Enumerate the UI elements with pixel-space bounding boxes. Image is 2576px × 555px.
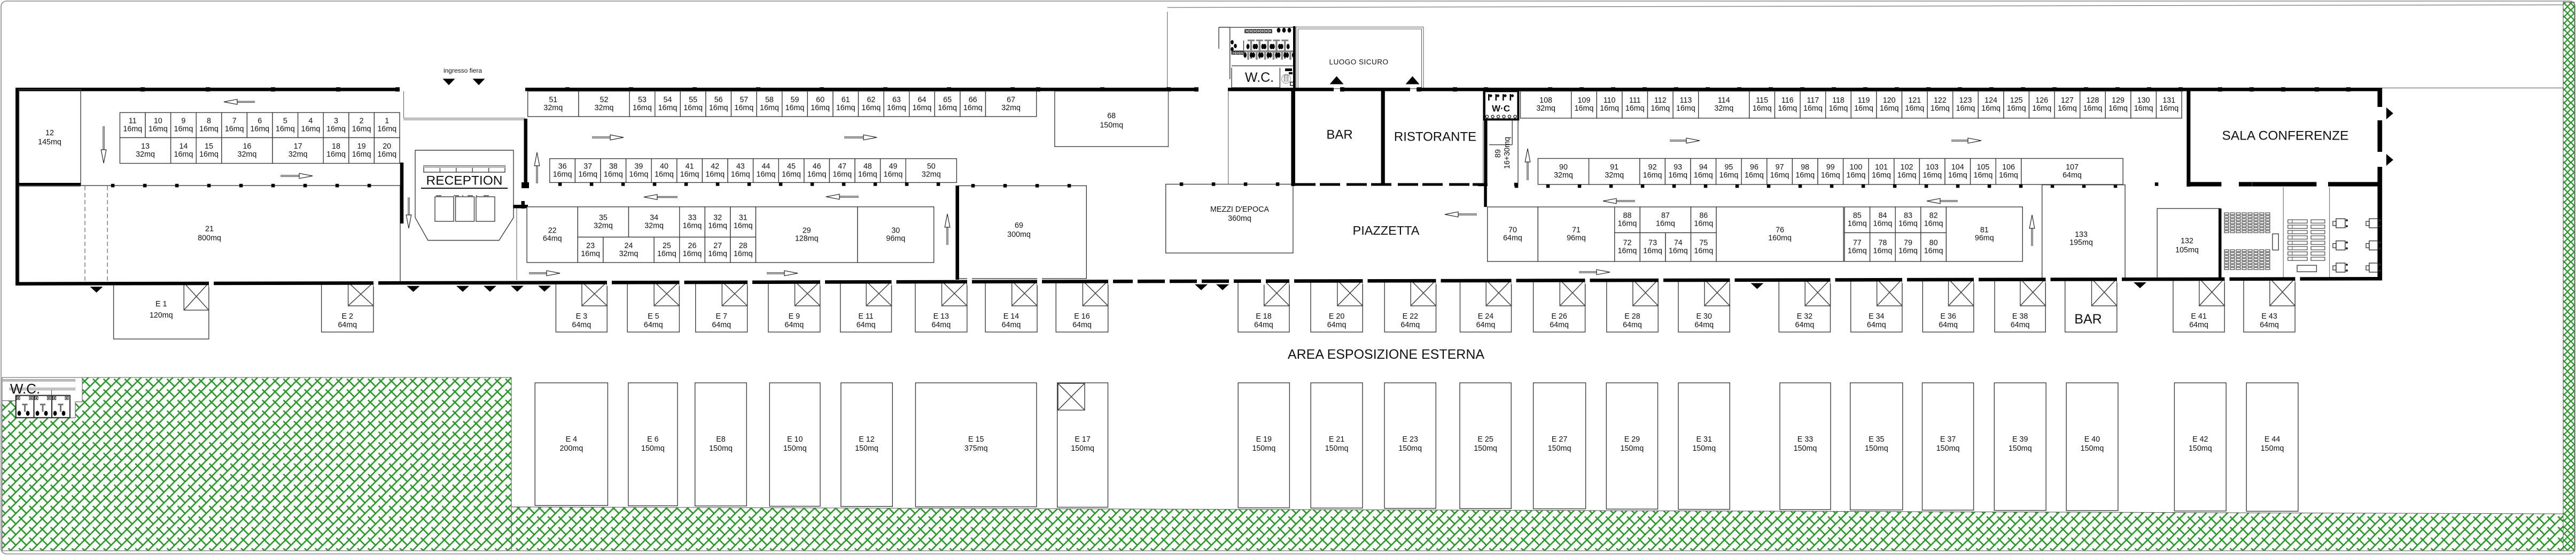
svg-text:200mq: 200mq <box>559 444 583 453</box>
svg-text:96: 96 <box>1750 163 1758 172</box>
svg-text:E 1: E 1 <box>155 300 167 309</box>
svg-text:150mq: 150mq <box>1865 444 1888 453</box>
svg-text:16mq: 16mq <box>1656 220 1675 228</box>
svg-text:94: 94 <box>1699 163 1708 172</box>
svg-text:121: 121 <box>1908 96 1921 105</box>
svg-text:16mq: 16mq <box>1829 104 1848 113</box>
svg-text:32mq: 32mq <box>619 250 639 258</box>
svg-text:64mq: 64mq <box>1623 321 1642 329</box>
svg-text:107: 107 <box>2066 163 2079 172</box>
svg-text:16mq: 16mq <box>633 104 652 112</box>
svg-text:16mq: 16mq <box>174 150 193 159</box>
svg-text:79: 79 <box>1904 239 1912 248</box>
svg-text:122: 122 <box>1934 96 1947 105</box>
svg-text:108: 108 <box>1539 96 1552 105</box>
svg-text:32mq: 32mq <box>1605 171 1624 180</box>
svg-text:85: 85 <box>1853 212 1862 220</box>
svg-text:57: 57 <box>740 96 748 104</box>
svg-text:16mq: 16mq <box>832 171 852 179</box>
svg-text:64mq: 64mq <box>1939 321 1958 329</box>
svg-text:97: 97 <box>1776 163 1784 172</box>
svg-text:16mq: 16mq <box>1924 220 1943 228</box>
svg-text:16mq: 16mq <box>1694 247 1713 256</box>
svg-text:RISTORANTE: RISTORANTE <box>1394 130 1476 144</box>
svg-text:132: 132 <box>2181 237 2193 245</box>
svg-text:64mq: 64mq <box>1254 321 1273 329</box>
svg-text:64mq: 64mq <box>543 234 562 243</box>
svg-text:23: 23 <box>586 242 595 250</box>
svg-text:96mq: 96mq <box>1975 234 1994 243</box>
svg-text:83: 83 <box>1904 212 1912 220</box>
svg-text:16mq: 16mq <box>2058 104 2077 113</box>
svg-text:E 27: E 27 <box>1552 435 1567 444</box>
svg-text:16mq: 16mq <box>1999 171 2018 180</box>
svg-text:16mq: 16mq <box>352 150 371 159</box>
svg-text:99: 99 <box>1826 163 1835 172</box>
svg-text:110: 110 <box>1604 96 1616 105</box>
svg-text:150mq: 150mq <box>855 444 878 453</box>
svg-text:16mq: 16mq <box>760 104 779 112</box>
svg-text:16mq: 16mq <box>887 104 906 112</box>
svg-text:16mq: 16mq <box>1778 104 1797 113</box>
svg-text:24: 24 <box>625 242 633 250</box>
svg-text:34: 34 <box>650 214 658 222</box>
svg-text:82: 82 <box>1929 212 1938 220</box>
svg-text:16mq: 16mq <box>149 125 168 134</box>
svg-text:15: 15 <box>205 142 213 151</box>
svg-text:16mq: 16mq <box>377 125 396 134</box>
svg-text:88: 88 <box>1623 212 1632 220</box>
svg-text:18: 18 <box>332 142 340 151</box>
svg-text:59: 59 <box>791 96 799 104</box>
svg-text:84: 84 <box>1878 212 1887 220</box>
svg-text:16mq: 16mq <box>578 171 597 179</box>
svg-text:70: 70 <box>1508 226 1517 235</box>
svg-text:41: 41 <box>686 163 694 171</box>
svg-text:16mq: 16mq <box>731 171 750 179</box>
svg-text:E 4: E 4 <box>566 435 578 444</box>
svg-text:114: 114 <box>1718 96 1730 105</box>
svg-text:16+30mq: 16+30mq <box>1503 137 1512 169</box>
svg-text:69: 69 <box>1015 221 1023 230</box>
svg-text:16mq: 16mq <box>708 222 727 230</box>
svg-text:11: 11 <box>129 117 137 126</box>
svg-text:E 38: E 38 <box>2012 312 2028 321</box>
svg-text:16mq: 16mq <box>811 104 830 112</box>
svg-text:16mq: 16mq <box>836 104 855 112</box>
svg-text:6: 6 <box>258 117 262 126</box>
svg-text:36: 36 <box>558 163 567 171</box>
svg-text:80: 80 <box>1929 239 1938 248</box>
svg-text:16mq: 16mq <box>1880 104 1899 113</box>
svg-text:160mq: 160mq <box>1768 234 1792 243</box>
svg-text:W·C: W·C <box>1492 104 1510 114</box>
svg-text:16mq: 16mq <box>1668 171 1687 180</box>
svg-text:E 21: E 21 <box>1329 435 1344 444</box>
svg-text:3: 3 <box>334 117 338 126</box>
svg-text:74: 74 <box>1674 239 1683 248</box>
svg-text:64mq: 64mq <box>644 321 663 329</box>
svg-text:16mq: 16mq <box>708 250 727 258</box>
svg-text:16mq: 16mq <box>1651 104 1670 113</box>
svg-text:64mq: 64mq <box>1400 321 1420 329</box>
svg-text:16mq: 16mq <box>884 171 903 179</box>
svg-text:2: 2 <box>360 117 364 126</box>
svg-text:16mq: 16mq <box>1923 171 1942 180</box>
svg-text:150mq: 150mq <box>2261 444 2284 453</box>
svg-text:16mq: 16mq <box>1821 171 1840 180</box>
svg-text:19: 19 <box>357 142 366 151</box>
svg-text:51: 51 <box>549 96 557 104</box>
svg-text:16mq: 16mq <box>1948 171 1967 180</box>
svg-text:16mq: 16mq <box>1694 171 1713 180</box>
svg-text:16mq: 16mq <box>2159 104 2178 113</box>
svg-text:32mq: 32mq <box>1554 171 1573 180</box>
svg-text:16mq: 16mq <box>123 125 142 134</box>
svg-text:16mq: 16mq <box>377 150 396 159</box>
svg-text:64mq: 64mq <box>1550 321 1569 329</box>
svg-text:16mq: 16mq <box>1745 171 1764 180</box>
svg-text:16mq: 16mq <box>199 125 219 134</box>
svg-text:119: 119 <box>1858 96 1870 105</box>
svg-text:E 32: E 32 <box>1797 312 1812 321</box>
svg-text:16mq: 16mq <box>604 171 623 179</box>
svg-text:E 40: E 40 <box>2084 435 2100 444</box>
svg-text:31: 31 <box>739 214 748 222</box>
svg-text:E 20: E 20 <box>1329 312 1344 321</box>
svg-text:64mq: 64mq <box>931 321 951 329</box>
svg-text:101: 101 <box>1875 163 1888 172</box>
svg-text:86: 86 <box>1699 212 1708 220</box>
svg-text:76: 76 <box>1776 226 1784 235</box>
svg-text:64mq: 64mq <box>2063 171 2082 180</box>
svg-text:16mq: 16mq <box>1956 104 1975 113</box>
svg-text:96mq: 96mq <box>1567 234 1586 243</box>
svg-text:E 5: E 5 <box>648 312 659 321</box>
svg-text:16mq: 16mq <box>683 250 702 258</box>
svg-text:145mq: 145mq <box>38 138 61 147</box>
svg-text:118: 118 <box>1832 96 1845 105</box>
svg-text:32mq: 32mq <box>289 150 308 159</box>
svg-text:E 9: E 9 <box>789 312 800 321</box>
svg-text:16mq: 16mq <box>734 222 753 230</box>
svg-text:58: 58 <box>765 96 774 104</box>
svg-text:42: 42 <box>711 163 719 171</box>
svg-text:16mq: 16mq <box>326 150 346 159</box>
svg-text:16mq: 16mq <box>734 250 753 258</box>
svg-text:150mq: 150mq <box>1692 444 1716 453</box>
svg-text:16mq: 16mq <box>1618 220 1637 228</box>
svg-text:16mq: 16mq <box>326 125 346 134</box>
svg-text:150mq: 150mq <box>1100 121 1123 129</box>
svg-text:E 14: E 14 <box>1003 312 1019 321</box>
svg-text:ingresso fiera: ingresso fiera <box>443 67 482 74</box>
svg-text:16mq: 16mq <box>2134 104 2153 113</box>
svg-text:92: 92 <box>1648 163 1657 172</box>
svg-text:39: 39 <box>634 163 643 171</box>
svg-text:104: 104 <box>1951 163 1964 172</box>
svg-text:195mq: 195mq <box>2069 238 2093 247</box>
svg-text:120mq: 120mq <box>150 311 173 320</box>
svg-text:SALA CONFERENZE: SALA CONFERENZE <box>2222 129 2349 143</box>
svg-text:64mq: 64mq <box>1327 321 1347 329</box>
svg-text:E 25: E 25 <box>1477 435 1493 444</box>
svg-text:113: 113 <box>1680 96 1692 105</box>
svg-text:64: 64 <box>918 96 927 104</box>
svg-text:150mq: 150mq <box>1398 444 1422 453</box>
svg-text:64mq: 64mq <box>784 321 804 329</box>
svg-text:16mq: 16mq <box>1753 104 1772 113</box>
svg-text:16mq: 16mq <box>1795 171 1815 180</box>
svg-text:E 28: E 28 <box>1624 312 1640 321</box>
svg-text:16mq: 16mq <box>1931 104 1950 113</box>
svg-text:BAR: BAR <box>2074 312 2102 327</box>
svg-text:115: 115 <box>1756 96 1768 105</box>
svg-text:47: 47 <box>838 163 846 171</box>
svg-text:16mq: 16mq <box>782 171 801 179</box>
svg-text:125: 125 <box>2010 96 2023 105</box>
svg-text:65: 65 <box>943 96 952 104</box>
svg-text:116: 116 <box>1781 96 1794 105</box>
svg-text:16mq: 16mq <box>1803 104 1823 113</box>
svg-text:16mq: 16mq <box>199 150 219 159</box>
svg-text:E 30: E 30 <box>1696 312 1711 321</box>
svg-text:55: 55 <box>689 96 697 104</box>
svg-text:21: 21 <box>205 225 214 234</box>
svg-text:16mq: 16mq <box>301 125 321 134</box>
svg-text:16mq: 16mq <box>705 171 725 179</box>
svg-text:16mq: 16mq <box>1694 220 1713 228</box>
svg-text:E 18: E 18 <box>1256 312 1271 321</box>
svg-text:54: 54 <box>664 96 672 104</box>
svg-text:64mq: 64mq <box>2011 321 2030 329</box>
svg-text:16mq: 16mq <box>1600 104 1619 113</box>
svg-text:124: 124 <box>1984 96 1997 105</box>
svg-text:64mq: 64mq <box>338 321 357 329</box>
svg-text:32mq: 32mq <box>644 222 664 230</box>
svg-text:16mq: 16mq <box>683 104 703 112</box>
svg-text:44: 44 <box>761 163 770 171</box>
svg-text:22: 22 <box>548 226 557 235</box>
svg-text:16mq: 16mq <box>1575 104 1594 113</box>
svg-text:150mq: 150mq <box>1071 444 1094 453</box>
svg-text:16mq: 16mq <box>807 171 827 179</box>
svg-text:64mq: 64mq <box>1503 234 1522 243</box>
svg-text:E 31: E 31 <box>1696 435 1711 444</box>
svg-text:5: 5 <box>283 117 287 126</box>
svg-text:32mq: 32mq <box>136 150 155 159</box>
svg-text:35: 35 <box>599 214 608 222</box>
svg-text:40: 40 <box>660 163 668 171</box>
svg-text:46: 46 <box>813 163 821 171</box>
svg-text:E 36: E 36 <box>1940 312 1956 321</box>
svg-text:16mq: 16mq <box>276 125 295 134</box>
svg-text:26: 26 <box>688 242 697 250</box>
svg-text:64mq: 64mq <box>572 321 591 329</box>
svg-text:MEZZI D'EPOCA: MEZZI D'EPOCA <box>1210 205 1269 214</box>
svg-text:16mq: 16mq <box>1770 171 1789 180</box>
svg-text:32: 32 <box>713 214 722 222</box>
svg-text:38: 38 <box>609 163 618 171</box>
svg-text:32mq: 32mq <box>594 222 613 230</box>
svg-text:150mq: 150mq <box>2009 444 2032 453</box>
svg-text:106: 106 <box>2002 163 2015 172</box>
svg-text:64mq: 64mq <box>712 321 731 329</box>
svg-text:112: 112 <box>1654 96 1667 105</box>
svg-text:16mq: 16mq <box>734 104 753 112</box>
svg-text:16mq: 16mq <box>1873 247 1893 256</box>
svg-text:128: 128 <box>2087 96 2099 105</box>
svg-text:16mq: 16mq <box>250 125 269 134</box>
svg-text:E 17: E 17 <box>1075 435 1090 444</box>
svg-text:30: 30 <box>891 226 900 235</box>
svg-text:71: 71 <box>1572 226 1581 235</box>
svg-text:120: 120 <box>1883 96 1896 105</box>
svg-text:81: 81 <box>1980 226 1989 235</box>
svg-text:RECEPTION: RECEPTION <box>426 174 503 188</box>
svg-text:360mq: 360mq <box>1228 214 1251 223</box>
svg-text:16mq: 16mq <box>1643 247 1662 256</box>
svg-text:25: 25 <box>663 242 671 250</box>
svg-text:64mq: 64mq <box>2189 321 2208 329</box>
svg-text:W.C.: W.C. <box>10 381 40 397</box>
svg-text:BAR: BAR <box>1326 128 1352 142</box>
svg-text:32mq: 32mq <box>543 104 563 112</box>
svg-text:56: 56 <box>714 96 723 104</box>
svg-text:14: 14 <box>179 142 188 151</box>
svg-text:16mq: 16mq <box>1676 104 1695 113</box>
svg-text:150mq: 150mq <box>1548 444 1571 453</box>
svg-text:E 42: E 42 <box>2192 435 2208 444</box>
svg-text:E 24: E 24 <box>1478 312 1493 321</box>
svg-text:E 12: E 12 <box>859 435 874 444</box>
svg-text:91: 91 <box>1610 163 1618 172</box>
svg-text:4: 4 <box>308 117 313 126</box>
svg-text:150mq: 150mq <box>641 444 665 453</box>
svg-text:16mq: 16mq <box>581 250 600 258</box>
svg-text:E 3: E 3 <box>576 312 588 321</box>
svg-text:16mq: 16mq <box>1625 104 1645 113</box>
svg-text:52: 52 <box>600 96 609 104</box>
svg-text:E 29: E 29 <box>1624 435 1640 444</box>
svg-text:16mq: 16mq <box>1848 247 1867 256</box>
svg-text:16mq: 16mq <box>683 222 702 230</box>
svg-text:64mq: 64mq <box>857 321 876 329</box>
svg-text:16mq: 16mq <box>225 125 244 134</box>
svg-text:150mq: 150mq <box>709 444 733 453</box>
svg-text:53: 53 <box>638 96 647 104</box>
svg-text:375mq: 375mq <box>964 444 988 453</box>
svg-text:13: 13 <box>141 142 150 151</box>
svg-text:109: 109 <box>1578 96 1591 105</box>
svg-text:32mq: 32mq <box>1536 104 1555 113</box>
svg-text:133: 133 <box>2075 230 2088 239</box>
svg-text:150mq: 150mq <box>1621 444 1644 453</box>
svg-text:50: 50 <box>927 163 936 171</box>
svg-text:16mq: 16mq <box>1873 220 1893 228</box>
svg-text:150mq: 150mq <box>1325 444 1349 453</box>
svg-text:102: 102 <box>1901 163 1913 172</box>
svg-text:150mq: 150mq <box>1936 444 1960 453</box>
svg-text:67: 67 <box>1007 96 1015 104</box>
svg-text:150mq: 150mq <box>1794 444 1817 453</box>
svg-text:16mq: 16mq <box>1898 220 1918 228</box>
svg-text:49: 49 <box>889 163 897 171</box>
svg-text:E 11: E 11 <box>858 312 873 321</box>
svg-text:E 26: E 26 <box>1551 312 1567 321</box>
svg-text:77: 77 <box>1853 239 1862 248</box>
svg-text:32mq: 32mq <box>1001 104 1021 112</box>
svg-text:87: 87 <box>1661 212 1670 220</box>
svg-text:16mq: 16mq <box>2032 104 2051 113</box>
svg-text:16mq: 16mq <box>1847 171 1866 180</box>
svg-text:16mq: 16mq <box>1981 104 2001 113</box>
svg-text:9: 9 <box>181 117 185 126</box>
svg-text:AREA ESPOSIZIONE ESTERNA: AREA ESPOSIZIONE ESTERNA <box>1288 347 1484 362</box>
svg-text:16mq: 16mq <box>861 104 881 112</box>
svg-text:E 15: E 15 <box>968 435 984 444</box>
svg-text:150mq: 150mq <box>1474 444 1497 453</box>
svg-text:64mq: 64mq <box>1002 321 1021 329</box>
svg-text:150mq: 150mq <box>2189 444 2212 453</box>
svg-text:45: 45 <box>787 163 796 171</box>
svg-text:32mq: 32mq <box>922 171 941 179</box>
svg-text:131: 131 <box>2162 96 2175 105</box>
svg-text:123: 123 <box>1959 96 1972 105</box>
svg-text:63: 63 <box>892 96 901 104</box>
svg-text:127: 127 <box>2061 96 2074 105</box>
svg-text:103: 103 <box>1926 163 1939 172</box>
svg-text:32mq: 32mq <box>595 104 614 112</box>
svg-text:16mq: 16mq <box>913 104 932 112</box>
svg-text:300mq: 300mq <box>1007 230 1031 239</box>
svg-text:61: 61 <box>842 96 850 104</box>
svg-text:117: 117 <box>1807 96 1819 105</box>
svg-text:129: 129 <box>2112 96 2124 105</box>
svg-text:64mq: 64mq <box>1795 321 1815 329</box>
svg-text:16mq: 16mq <box>1643 171 1662 180</box>
svg-text:64mq: 64mq <box>1694 321 1714 329</box>
svg-text:32mq: 32mq <box>238 150 257 159</box>
svg-text:E 44: E 44 <box>2264 435 2280 444</box>
svg-text:PIAZZETTA: PIAZZETTA <box>1353 223 1420 237</box>
svg-text:E 23: E 23 <box>1402 435 1418 444</box>
svg-text:48: 48 <box>863 163 872 171</box>
svg-text:16mq: 16mq <box>1872 171 1891 180</box>
svg-text:16mq: 16mq <box>629 171 649 179</box>
svg-text:16mq: 16mq <box>553 171 572 179</box>
svg-text:29: 29 <box>803 226 811 235</box>
svg-text:37: 37 <box>583 163 592 171</box>
svg-text:12: 12 <box>45 129 54 137</box>
svg-text:E 22: E 22 <box>1403 312 1418 321</box>
svg-text:E8: E8 <box>716 435 726 444</box>
svg-text:32mq: 32mq <box>1714 104 1733 113</box>
svg-text:16mq: 16mq <box>709 104 728 112</box>
svg-text:E 16: E 16 <box>1074 312 1089 321</box>
svg-text:96mq: 96mq <box>886 234 905 243</box>
svg-text:16mq: 16mq <box>1719 171 1739 180</box>
svg-text:E 10: E 10 <box>787 435 803 444</box>
svg-text:E 41: E 41 <box>2191 312 2206 321</box>
svg-text:16mq: 16mq <box>938 104 957 112</box>
svg-text:16mq: 16mq <box>1974 171 1993 180</box>
svg-text:16mq: 16mq <box>174 125 193 134</box>
svg-text:E 6: E 6 <box>647 435 659 444</box>
svg-text:8: 8 <box>207 117 211 126</box>
svg-text:111: 111 <box>1629 96 1641 105</box>
svg-text:105mq: 105mq <box>2175 246 2199 255</box>
